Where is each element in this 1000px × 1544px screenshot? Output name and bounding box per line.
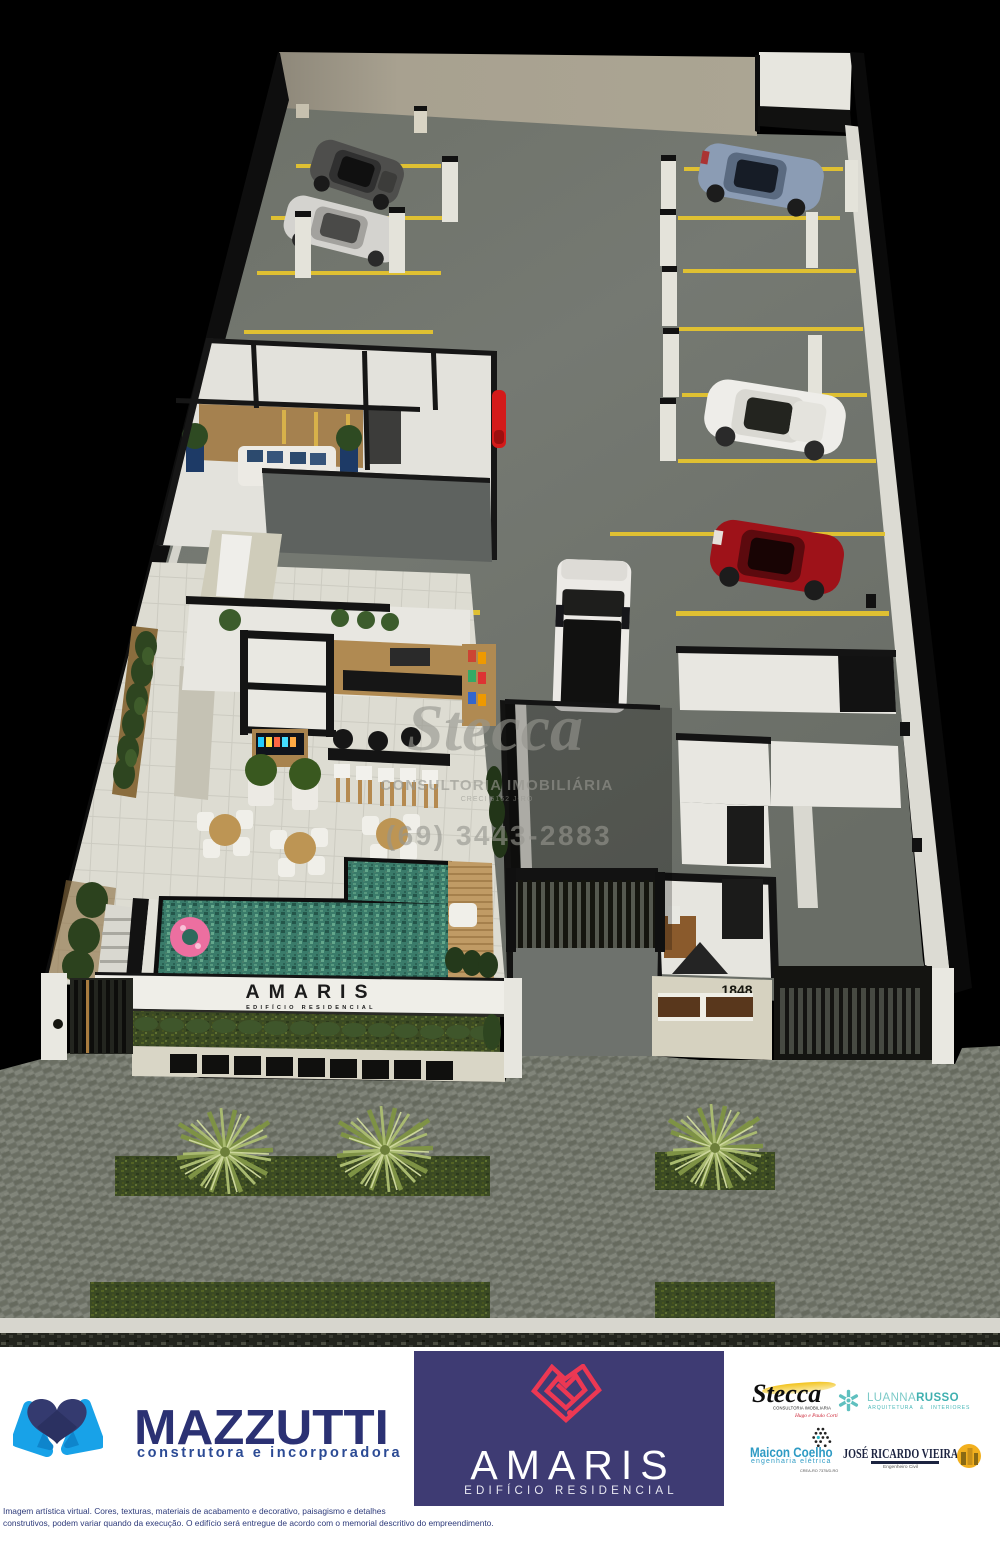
svg-text:CONSULTORIA IMOBILIÁRIA: CONSULTORIA IMOBILIÁRIA bbox=[380, 777, 613, 794]
svg-text:CRECI 6162 J-RO: CRECI 6162 J-RO bbox=[461, 796, 534, 803]
svg-text:EDIFÍCIO RESIDENCIAL: EDIFÍCIO RESIDENCIAL bbox=[246, 1003, 376, 1011]
svg-text:Stecca: Stecca bbox=[407, 692, 583, 765]
svg-text:AMARIS: AMARIS bbox=[246, 981, 377, 1003]
svg-text:(69) 3443-2883: (69) 3443-2883 bbox=[386, 820, 612, 851]
